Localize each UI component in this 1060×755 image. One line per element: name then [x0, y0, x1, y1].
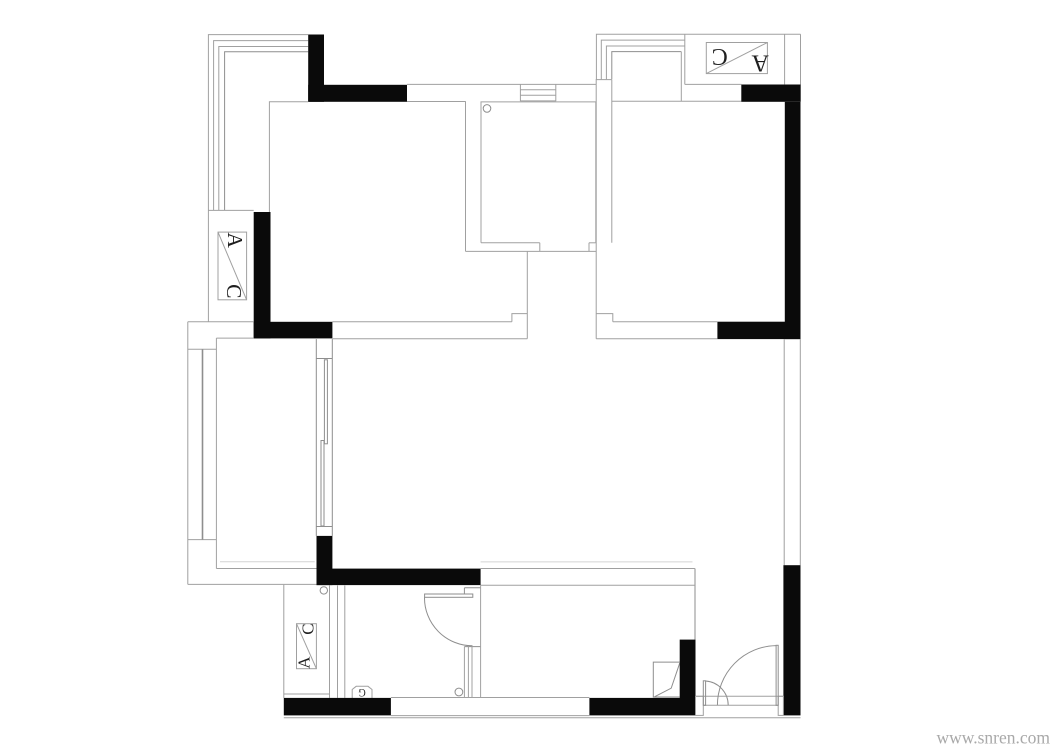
svg-text:C: C	[222, 284, 246, 298]
svg-text:A: A	[295, 656, 314, 669]
svg-text:G: G	[358, 686, 365, 699]
svg-text:www.snren.com: www.snren.com	[936, 728, 1050, 748]
svg-text:C: C	[712, 43, 728, 69]
svg-text:C: C	[299, 623, 318, 634]
svg-text:A: A	[223, 232, 247, 248]
svg-text:A: A	[751, 50, 769, 76]
